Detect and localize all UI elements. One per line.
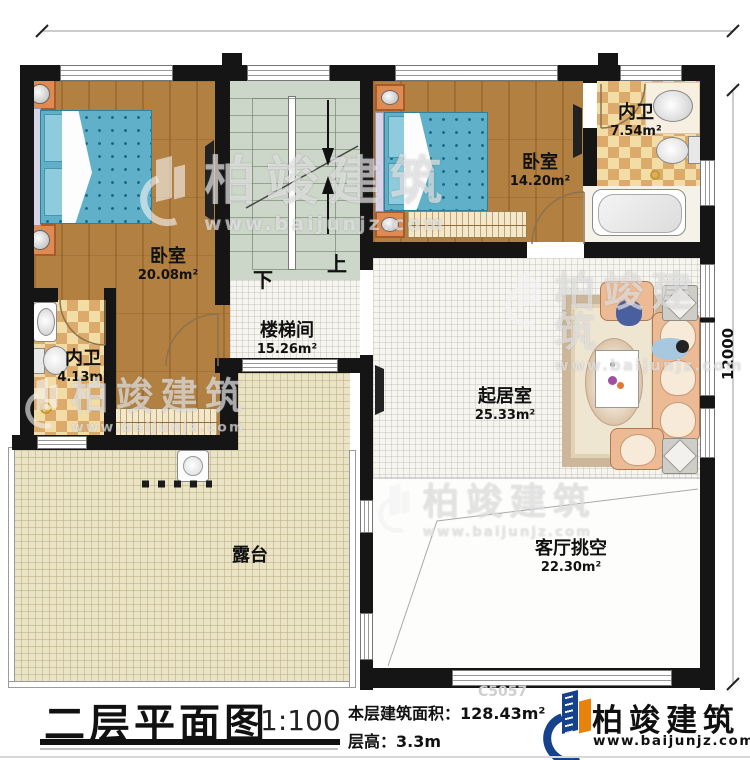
room-name: 内卫 xyxy=(50,348,116,370)
drawing-code: C5057 xyxy=(478,684,527,700)
dimension-value-right: 12000 xyxy=(719,324,737,384)
floor-height-value: 3.3m xyxy=(396,732,441,751)
room-area: 7.54m² xyxy=(600,124,672,140)
door-arc xyxy=(166,314,218,366)
room-area: 15.26m² xyxy=(228,342,346,358)
room-label-bedroom1: 卧室 20.08m² xyxy=(112,246,224,283)
logo-tower-blue xyxy=(562,690,578,734)
floor-height-label: 层高： xyxy=(348,732,396,751)
void-diagonal xyxy=(388,489,698,666)
title-underline xyxy=(40,739,340,745)
room-area: 4.13m² xyxy=(50,370,116,386)
room-label-bedroom2: 卧室 14.20m² xyxy=(482,152,598,189)
room-name: 卧室 xyxy=(112,246,224,268)
room-area: 20.08m² xyxy=(112,268,224,284)
room-area: 22.30m² xyxy=(510,560,632,576)
room-label-terrace: 露台 xyxy=(222,545,278,567)
brand-website: www.baijunjz.com xyxy=(593,733,750,749)
room-label-void: 客厅挑空 22.30m² xyxy=(510,538,632,575)
floor-area-label: 本层建筑面积： xyxy=(348,704,460,723)
floor-plan-sheet: 卧室 20.08m² 下 上 楼梯间 15.26m² 卧室 14.20m² 内卫… xyxy=(0,0,750,760)
door-arc xyxy=(532,192,584,244)
sheet-scale: 1:100 xyxy=(260,704,341,737)
room-name: 露台 xyxy=(222,545,278,567)
room-label-bathroom2: 内卫 7.54m² xyxy=(600,102,672,139)
room-name: 卧室 xyxy=(482,152,598,174)
room-label-stairwell: 楼梯间 15.26m² xyxy=(228,320,346,357)
room-label-bathroom1: 内卫 4.13m² xyxy=(50,348,116,385)
room-name: 客厅挑空 xyxy=(510,538,632,560)
room-name: 楼梯间 xyxy=(228,320,346,342)
logo-tower-orange xyxy=(579,699,591,734)
floor-area-line: 本层建筑面积：128.43m² xyxy=(348,700,545,724)
room-name: 内卫 xyxy=(600,102,672,124)
floor-area-value: 128.43m² xyxy=(460,704,545,723)
room-label-living: 起居室 25.33m² xyxy=(455,386,555,423)
stair-arrowhead xyxy=(322,148,334,166)
brand-logo-icon xyxy=(543,691,595,755)
stair-arrowhead xyxy=(322,176,334,194)
stair-break-line xyxy=(246,146,358,208)
room-area: 25.33m² xyxy=(455,408,555,424)
door-arc xyxy=(60,300,105,345)
floor-height-line: 层高：3.3m xyxy=(348,728,441,752)
sheet-bottom-edge xyxy=(0,756,750,758)
room-area: 14.20m² xyxy=(482,174,598,190)
stair-up-label: 上 xyxy=(327,248,347,277)
room-name: 起居室 xyxy=(455,386,555,408)
stair-down-label: 下 xyxy=(253,264,273,293)
title-underline-thin xyxy=(40,748,338,750)
